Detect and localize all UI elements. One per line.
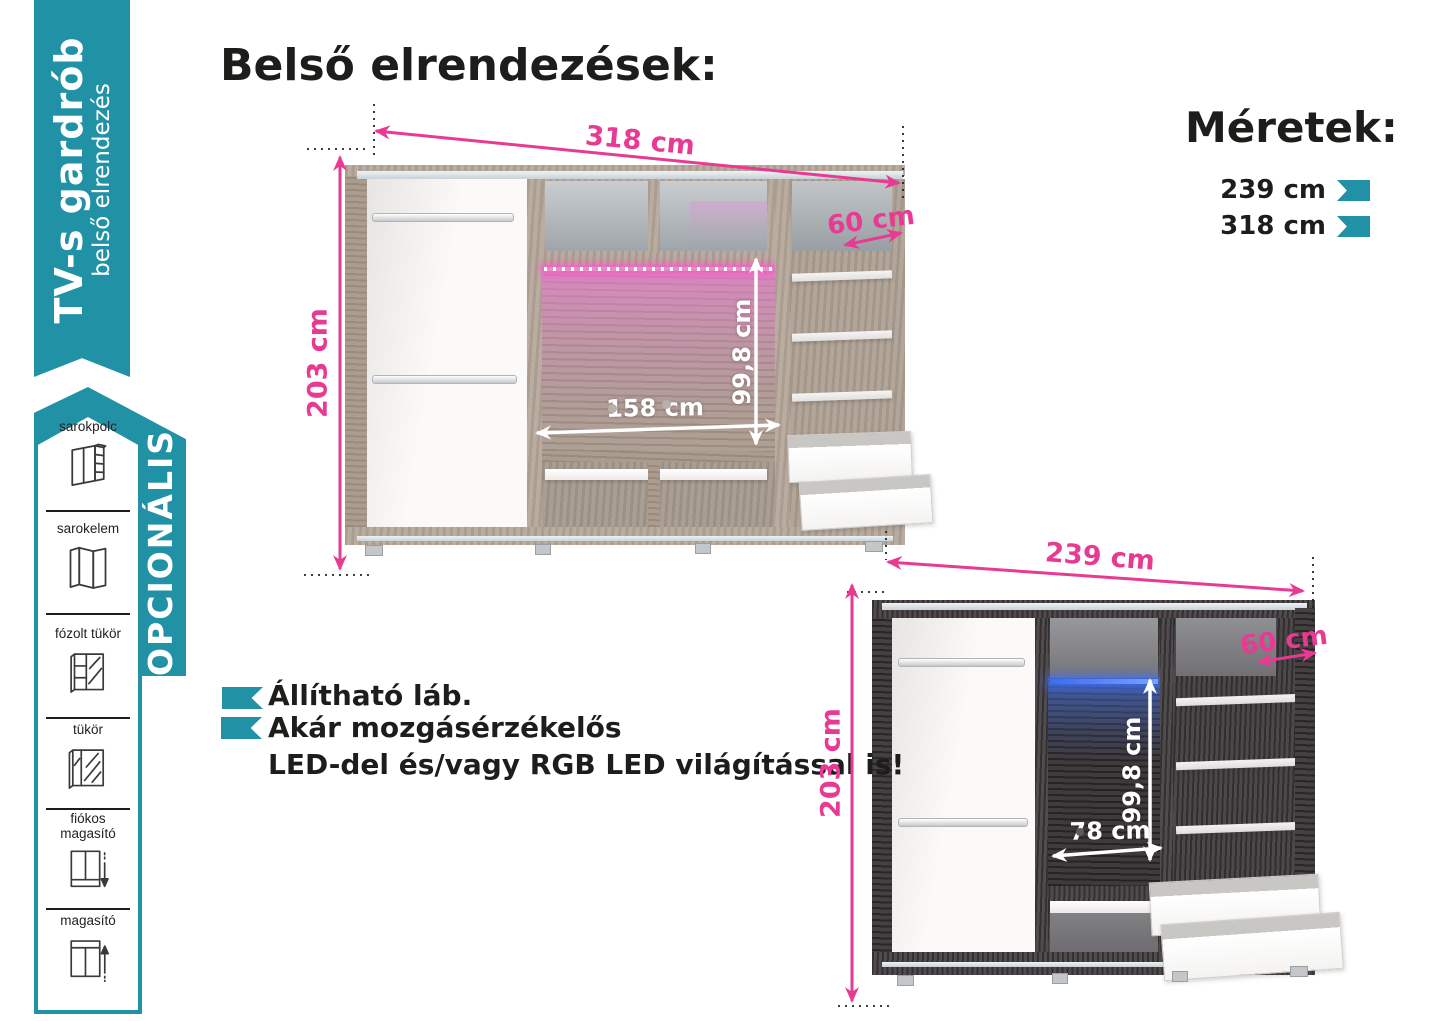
dim-small-width: 239 cm (1044, 537, 1156, 577)
corner-shelf-icon (59, 437, 117, 493)
bevelled-mirror-icon (59, 644, 117, 698)
top-led-strip (882, 603, 1307, 610)
clothes-rail (372, 213, 514, 222)
option-fozolt-tukor: fózolt tükör (40, 627, 136, 702)
size-flag-icon (1337, 216, 1370, 237)
panel-hole (662, 400, 671, 409)
size-item-239: 239 cm (1196, 175, 1326, 205)
dim-large-tv-height: 99,8 cm (728, 299, 756, 406)
base-strip (357, 536, 893, 541)
catalog-page: OPCIONÁLIS TV-s gardrób belső elrendezés… (0, 0, 1445, 1021)
cubby-shelf (660, 469, 767, 480)
options-separator (46, 908, 130, 910)
foot (865, 541, 883, 552)
bullet-flag-icon (222, 687, 263, 709)
foot (1172, 971, 1188, 982)
foot (897, 975, 914, 986)
pink-led-strip (544, 267, 773, 271)
side-panel (345, 165, 367, 545)
shelf (792, 390, 892, 401)
open-drawer (799, 474, 934, 531)
divider-panel (527, 179, 542, 531)
foot (535, 544, 551, 555)
feature-motion-sensor: Akár mozgásérzékelős (268, 711, 622, 744)
dim-large-tv-width: 158 cm (606, 393, 704, 423)
option-label: fózolt tükör (40, 627, 136, 642)
option-label-line1: fiókos (40, 812, 136, 827)
options-separator (46, 808, 130, 810)
cubby-divider (648, 181, 660, 253)
option-magasito: magasító (40, 914, 136, 987)
option-tukor: tükör (40, 723, 136, 798)
cubby-shelf (545, 469, 648, 480)
top-cubby (1050, 618, 1158, 678)
panel-hole (608, 404, 617, 413)
brand-ribbon-text: TV-s gardrób belső elrendezés (35, 0, 131, 360)
options-separator (46, 510, 130, 512)
clothes-rail (372, 375, 517, 384)
hanging-section (367, 179, 527, 531)
option-label: sarokelem (40, 522, 136, 537)
shelf (792, 270, 892, 281)
size-item-318: 318 cm (1196, 211, 1326, 241)
brand-subtitle: belső elrendezés (90, 83, 115, 277)
cubby-shelf (1050, 901, 1158, 913)
wardrobe-large-render (345, 165, 905, 545)
top-cubby (545, 181, 648, 251)
shelf (1176, 694, 1303, 706)
option-label: tükör (40, 723, 136, 738)
dim-large-width: 318 cm (584, 120, 696, 161)
option-label: magasító (40, 914, 136, 929)
foot (695, 543, 711, 554)
pink-glow (690, 201, 767, 251)
tv-shelf (542, 451, 775, 462)
hanging-section (892, 618, 1035, 958)
shelf (792, 330, 892, 341)
optional-ribbon-label: OPCIONÁLIS (141, 436, 185, 676)
size-flag-icon (1337, 180, 1370, 201)
option-label-line2: magasító (40, 827, 136, 842)
panel-hole (1076, 828, 1084, 836)
drawer-riser-icon (59, 843, 117, 893)
clothes-rail (898, 658, 1025, 667)
option-fiokos-magasito: fiókos magasító (40, 812, 136, 897)
divider-panel (1035, 618, 1048, 958)
options-separator (46, 613, 130, 615)
top-led-strip (357, 171, 903, 179)
option-label: sarokpolc (40, 420, 136, 435)
shelf (1176, 758, 1303, 770)
foot (1052, 973, 1068, 984)
dim-small-tv-height: 99,8 cm (1118, 717, 1146, 824)
dim-small-height: 203 cm (816, 708, 847, 818)
corner-element-icon (59, 539, 117, 595)
blue-led-strip (1050, 679, 1158, 684)
top-cubby (660, 181, 767, 251)
clothes-rail (898, 818, 1028, 827)
page-title: Belső elrendezések: (220, 40, 718, 91)
brand-title: TV-s gardrób (50, 36, 90, 323)
riser-icon (59, 931, 117, 983)
options-separator (46, 717, 130, 719)
side-panel (872, 600, 892, 975)
sizes-title: Méretek: (1185, 103, 1385, 152)
shelf (1176, 822, 1303, 834)
bullet-flag-icon (221, 717, 262, 739)
feature-led-line: LED-del és/vagy RGB LED világítással is! (268, 748, 904, 781)
option-sarokpolc: sarokpolc (40, 420, 136, 497)
foot (365, 545, 383, 556)
foot (1290, 966, 1308, 977)
dim-large-height: 203 cm (303, 308, 334, 418)
feature-adjustable-feet: Állítható láb. (268, 679, 472, 712)
mirror-icon (59, 740, 117, 794)
option-sarokelem: sarokelem (40, 522, 136, 599)
